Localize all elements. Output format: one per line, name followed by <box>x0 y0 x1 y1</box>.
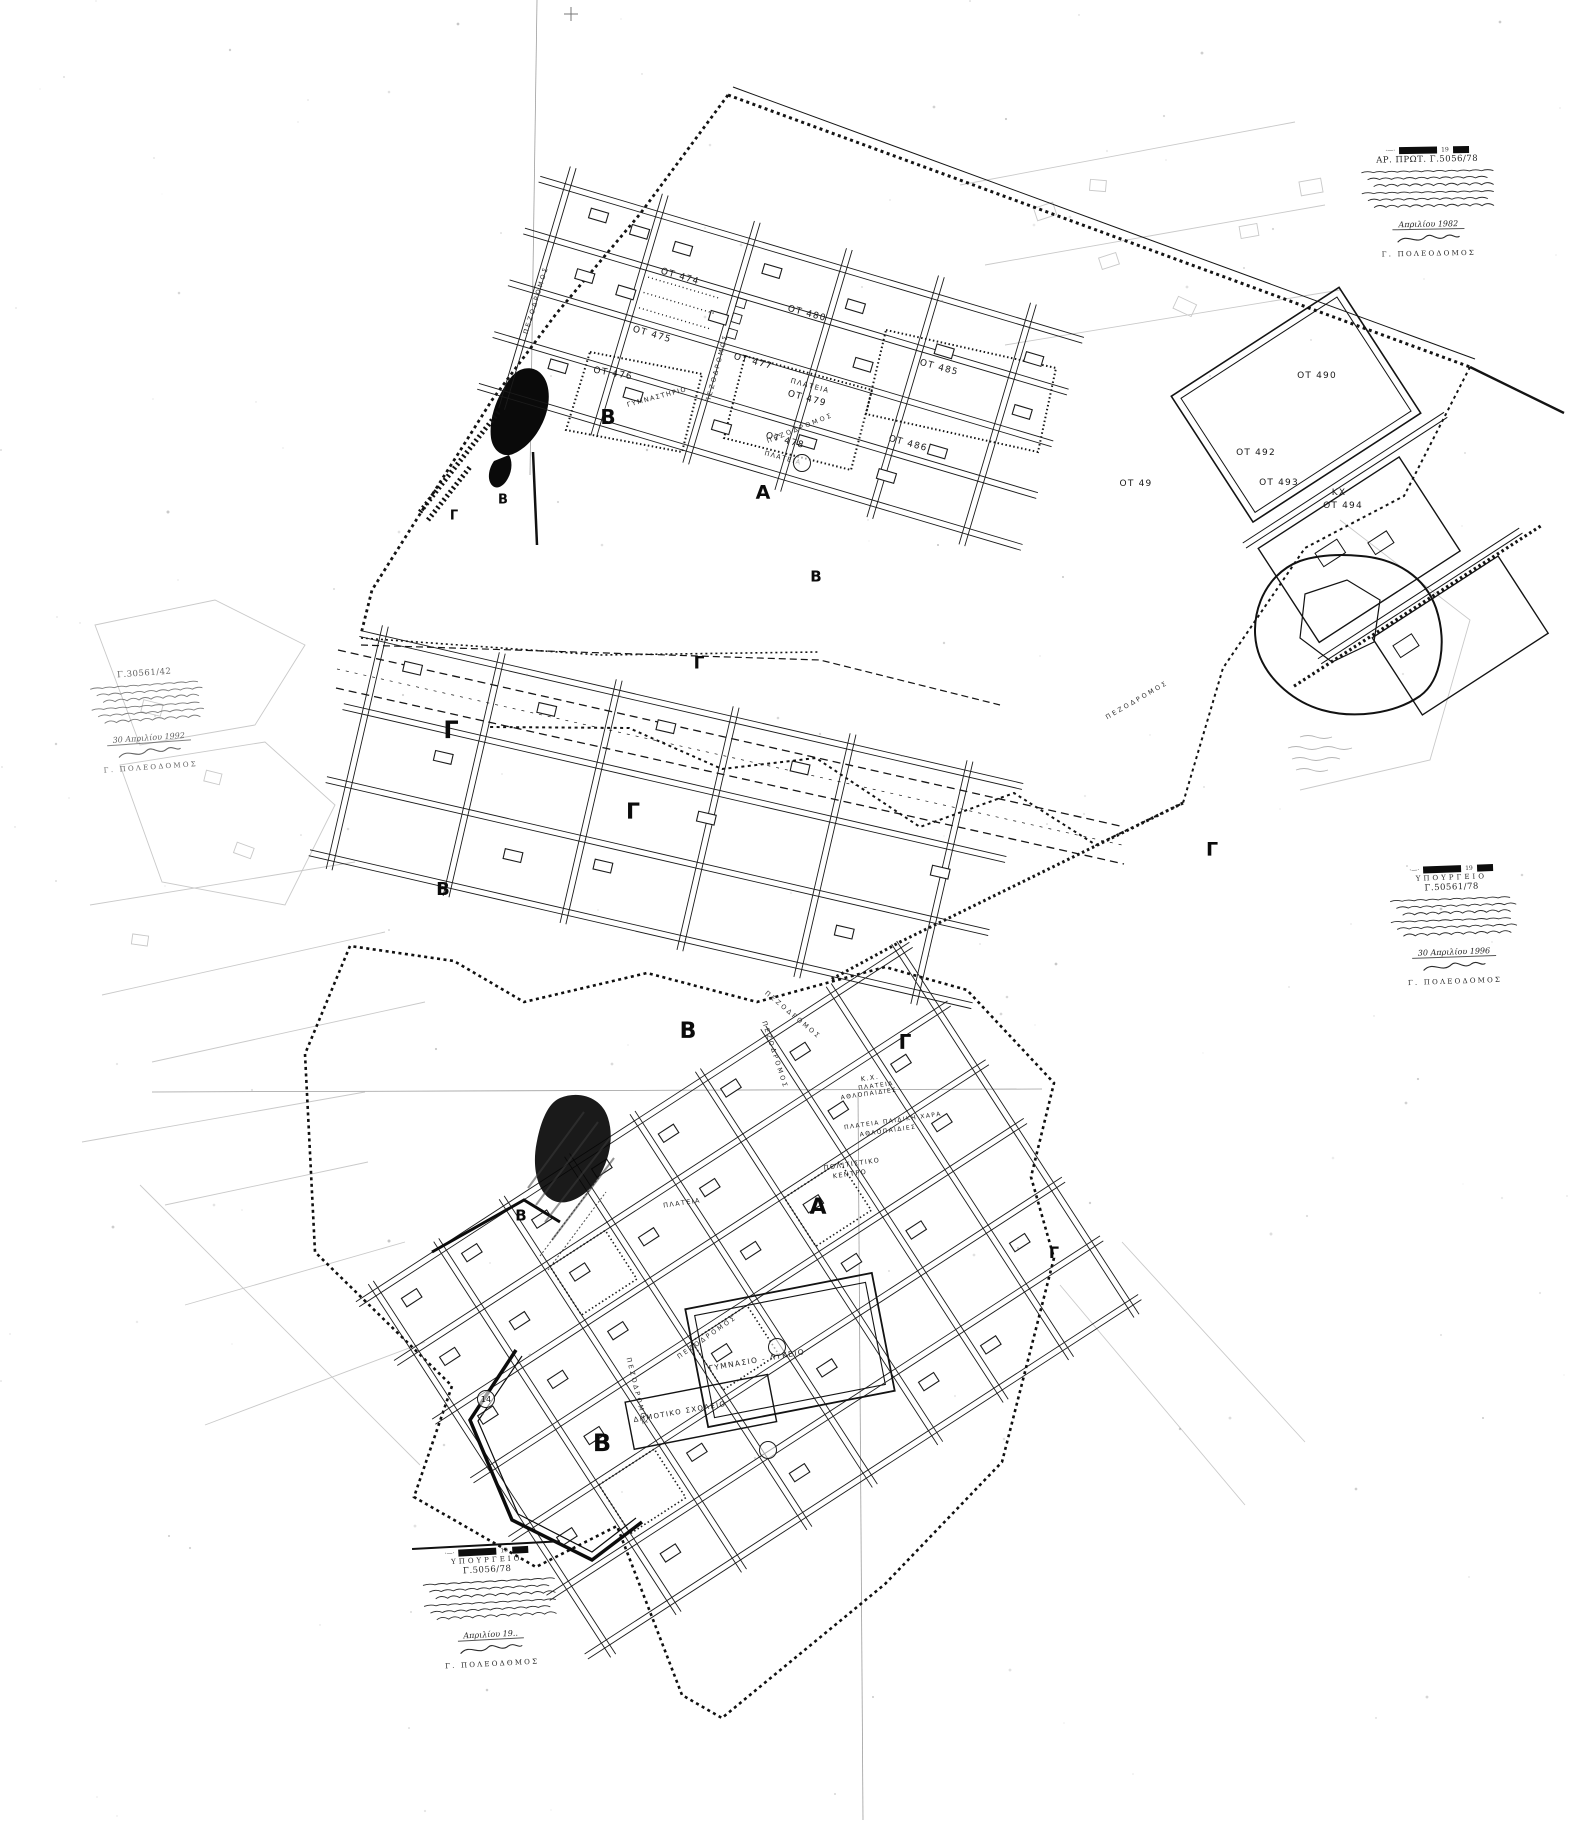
stamp-date-line: Απριλίου 1982 <box>1392 219 1464 230</box>
stamp-dashes: ·—· <box>444 1550 454 1558</box>
stamp-dashes: ·—· <box>1385 147 1395 154</box>
map-canvas: ΟΤ 474ΟΤ 475ΟΤ 476ΟΤ 477ΟΤ 478ΟΤ 479ΟΤ 4… <box>0 0 1571 1821</box>
stamp-signer: Γ. ΠΟΛΕΟΔΟΜΟΣ <box>1384 975 1526 988</box>
handwriting-scribble <box>1388 891 1518 941</box>
stamp-left: Γ.30561/4230 Απριλίου 1992Γ. ΠΟΛΕΟΔΟΜΟΣ <box>80 663 215 776</box>
handwriting-scribble <box>421 1573 557 1626</box>
handwriting-scribble <box>88 676 205 730</box>
redacted-bar <box>1477 864 1493 872</box>
handwriting-scribble <box>1359 165 1496 213</box>
redacted-bar <box>1423 865 1461 873</box>
stamp-date-line: 30 Απριλίου 1996 <box>1412 946 1497 959</box>
signature-scribble <box>1393 230 1463 247</box>
stamp-signer: Γ. ΠΟΛΕΟΔΟΜΟΣ <box>87 759 215 776</box>
stamp-bottom: ·—·19ΥΠΟΥΡΓΕΙΟΓ.5056/78Απριλίου 19..Γ. Π… <box>412 1540 566 1672</box>
stamp-dashes: 19 <box>1465 865 1473 872</box>
stamp-right: ·—·19ΥΠΟΥΡΓΕΙΟΓ.50561/7830 Απριλίου 1996… <box>1380 863 1526 988</box>
stamp-signer: Γ. ΠΟΛΕΟΔΟΜΟΣ <box>418 1656 566 1672</box>
stamp-dashes: ·—· <box>1409 867 1419 874</box>
stamp-dashes: 19 <box>500 1547 508 1554</box>
stamp-signer: Γ. ΠΟΛΕΟΔΟΜΟΣ <box>1354 248 1504 259</box>
stamp-top-right: ·—·19ΑΡ. ΠΡΩΤ. Γ.5056/78Απριλίου 1982Γ. … <box>1352 145 1504 259</box>
stamps-layer: ·—·19ΑΡ. ΠΡΩΤ. Γ.5056/78Απριλίου 1982Γ. … <box>0 0 1571 1821</box>
stamp-date-line: Απριλίου 19.. <box>457 1628 524 1641</box>
redacted-bar <box>1399 147 1437 155</box>
stamp-dashes: 19 <box>1441 146 1449 153</box>
signature-scribble <box>1419 957 1490 975</box>
redacted-bar <box>1453 146 1469 153</box>
redacted-bar <box>512 1546 528 1554</box>
